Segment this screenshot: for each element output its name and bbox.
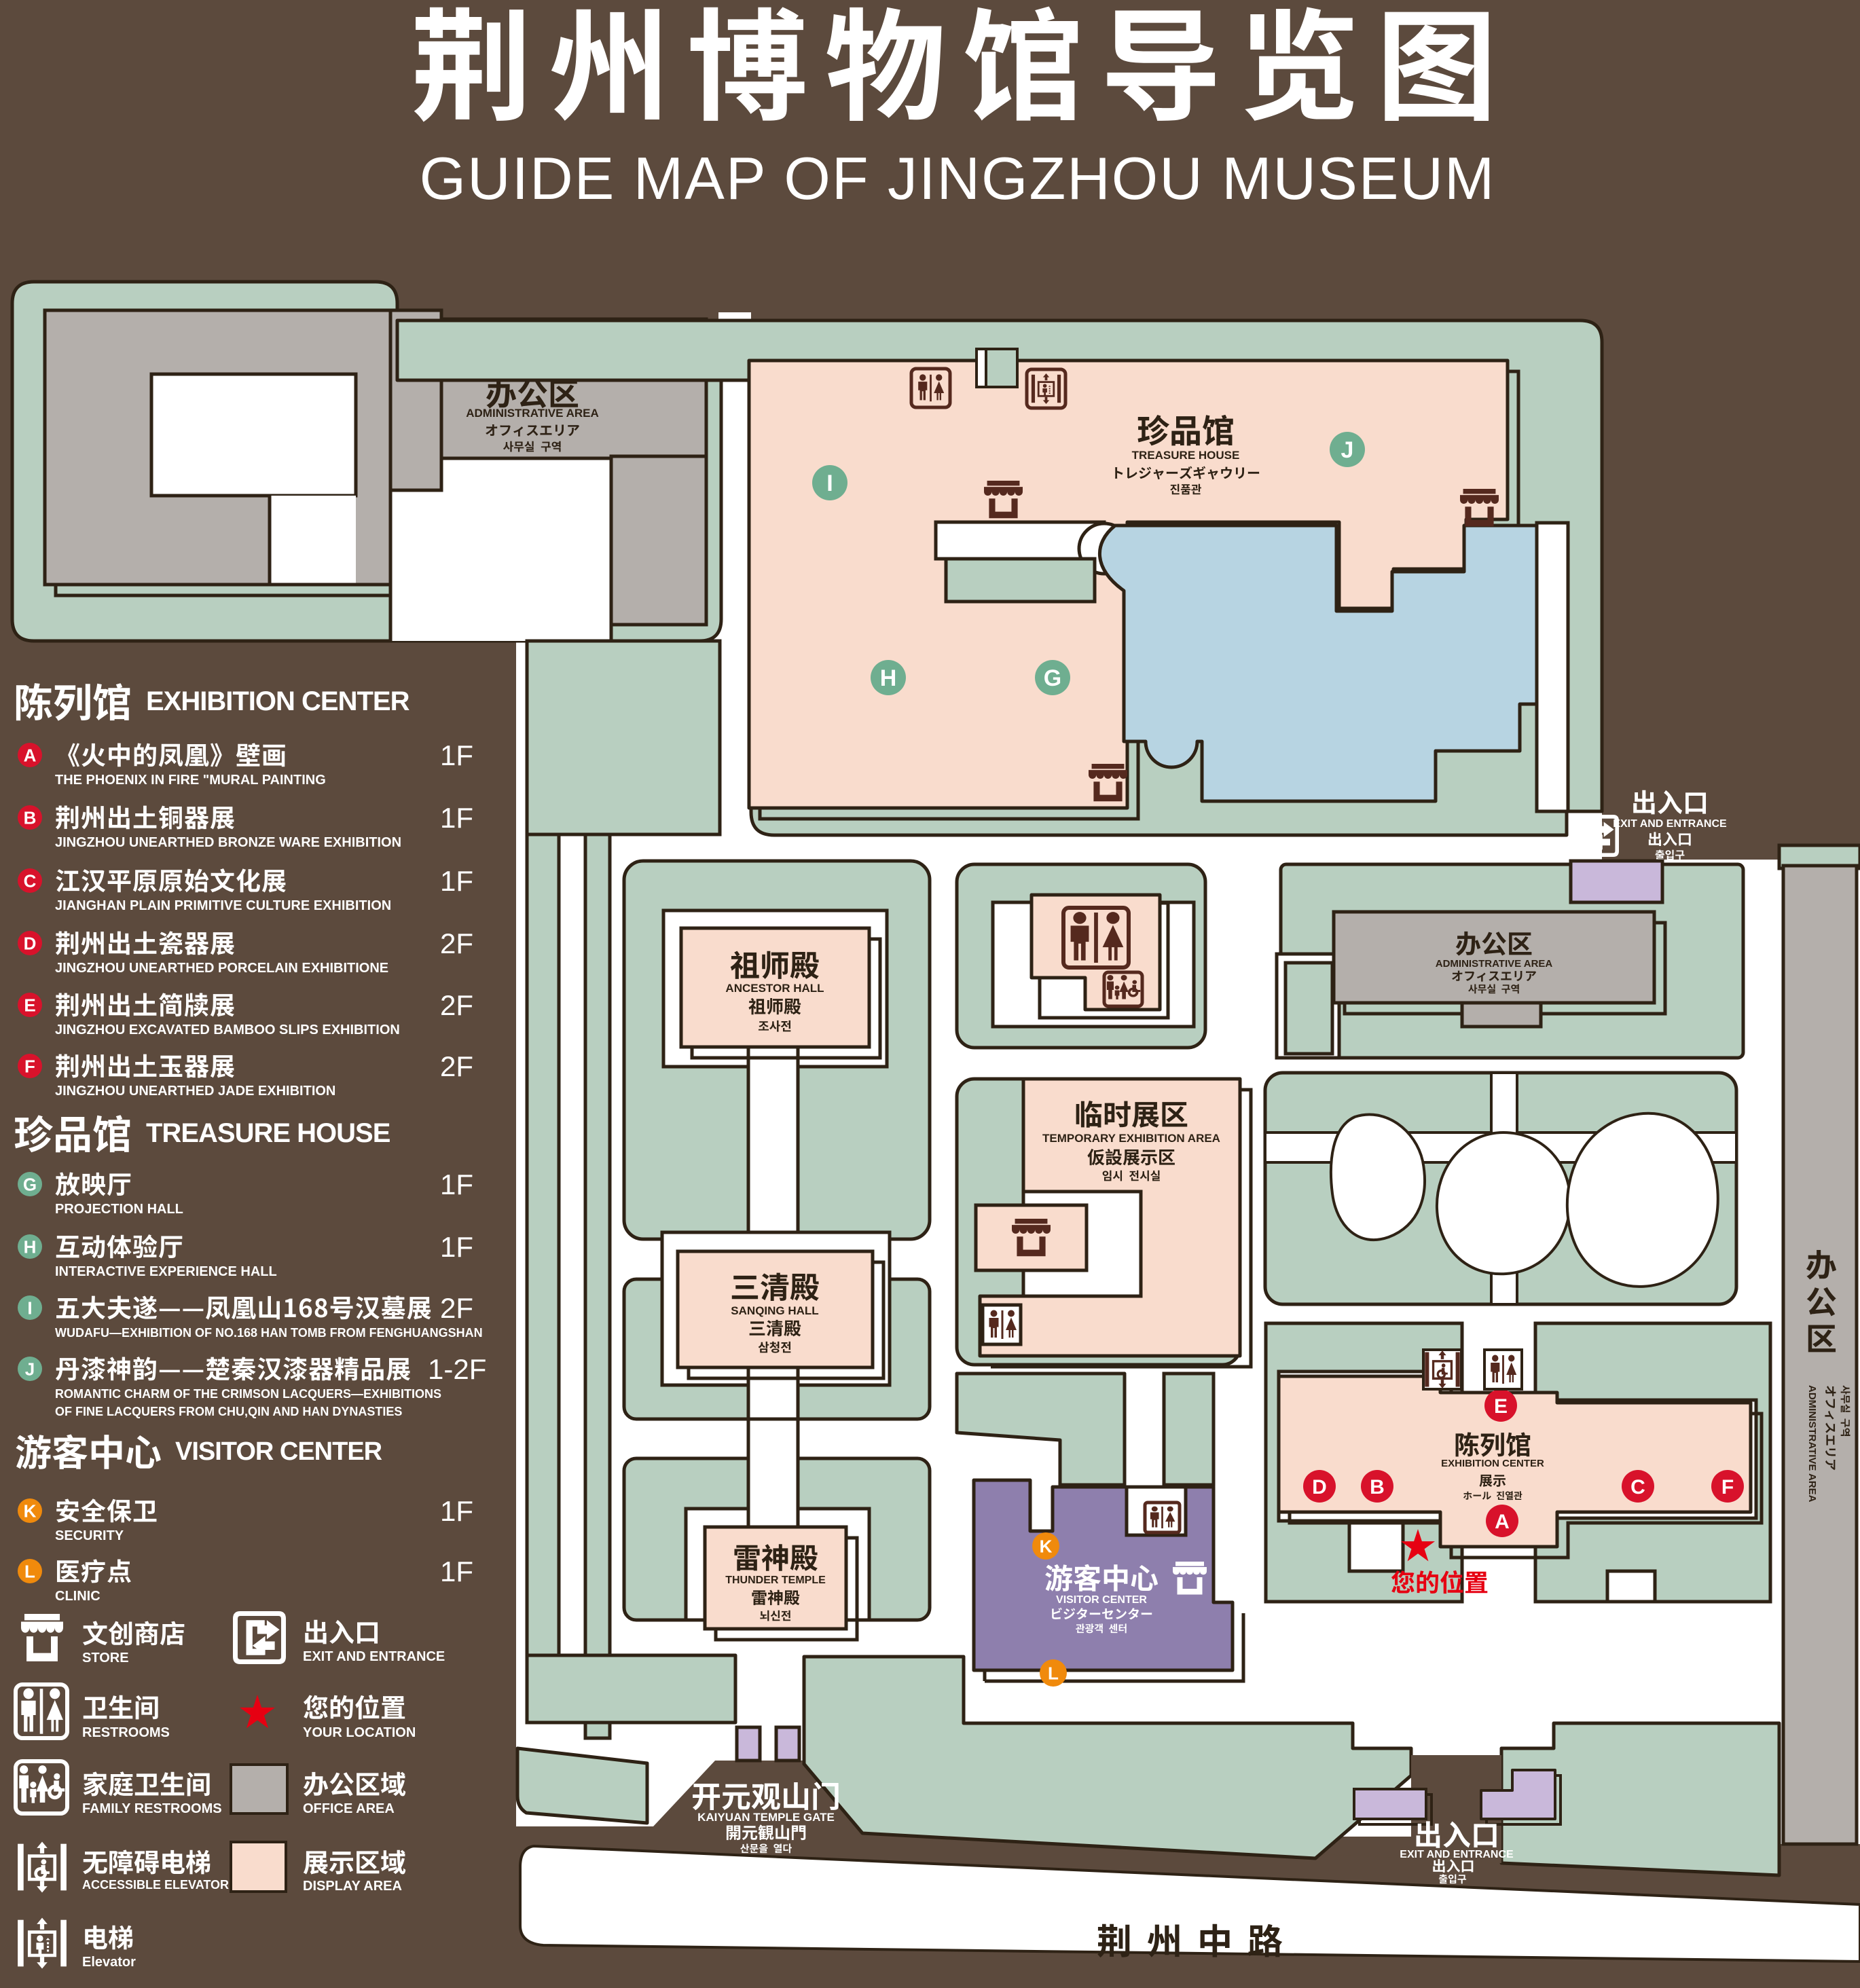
svg-text:Elevator: Elevator: [82, 1955, 136, 1970]
svg-text:TREASURE HOUSE: TREASURE HOUSE: [146, 1118, 390, 1148]
svg-text:E: E: [1494, 1395, 1508, 1418]
svg-text:JINGZHOU UNEARTHED PORCELAIN E: JINGZHOU UNEARTHED PORCELAIN EXHIBITIONE: [55, 961, 388, 976]
svg-text:EXIT AND ENTRANCE: EXIT AND ENTRANCE: [1400, 1849, 1514, 1860]
svg-text:ADMINISTRATIVE AREA: ADMINISTRATIVE AREA: [1436, 958, 1553, 970]
svg-text:GUIDE MAP OF JINGZHOU MUSEUM: GUIDE MAP OF JINGZHOU MUSEUM: [420, 145, 1496, 212]
svg-text:1F: 1F: [440, 739, 473, 771]
svg-text:2F: 2F: [440, 1050, 473, 1082]
svg-text:ANCESTOR HALL: ANCESTOR HALL: [725, 982, 824, 995]
svg-text:I: I: [27, 1297, 32, 1318]
svg-text:KAIYUAN TEMPLE GATE: KAIYUAN TEMPLE GATE: [697, 1811, 835, 1824]
svg-text:EXHIBITION CENTER: EXHIBITION CENTER: [1441, 1458, 1544, 1469]
svg-text:G: G: [23, 1174, 37, 1194]
svg-text:2F: 2F: [440, 1292, 473, 1324]
svg-text:1F: 1F: [440, 1495, 473, 1527]
svg-text:ACCESSIBLE ELEVATOR: ACCESSIBLE ELEVATOR: [82, 1878, 229, 1892]
svg-text:SANQING HALL: SANQING HALL: [731, 1304, 818, 1317]
svg-text:JINGZHOU EXCAVATED BAMBOO SLIP: JINGZHOU EXCAVATED BAMBOO SLIPS EXHIBITI…: [55, 1023, 400, 1037]
svg-text:J: J: [25, 1359, 35, 1379]
svg-text:ROMANTIC CHARM OF THE CRIMSON: ROMANTIC CHARM OF THE CRIMSON LACQUERS—E…: [55, 1387, 441, 1401]
svg-text:PROJECTION HALL: PROJECTION HALL: [55, 1202, 183, 1217]
svg-text:2F: 2F: [440, 927, 473, 959]
svg-text:VISITOR CENTER: VISITOR CENTER: [175, 1437, 382, 1466]
svg-text:THE PHOENIX IN FIRE "MURAL PAI: THE PHOENIX IN FIRE "MURAL PAINTING: [55, 773, 326, 788]
svg-text:D: D: [24, 933, 37, 953]
svg-text:B: B: [24, 807, 37, 828]
svg-text:1-2F: 1-2F: [428, 1353, 486, 1385]
svg-text:E: E: [24, 995, 35, 1015]
svg-text:JIANGHAN PLAIN PRIMITIVE CULTU: JIANGHAN PLAIN PRIMITIVE CULTURE EXHIBIT…: [55, 898, 391, 913]
svg-text:ADMINISTRATIVE AREA: ADMINISTRATIVE AREA: [1806, 1385, 1818, 1503]
svg-text:K: K: [24, 1501, 37, 1521]
svg-text:1F: 1F: [440, 802, 473, 834]
svg-text:F: F: [1721, 1476, 1734, 1498]
svg-text:FAMILY RESTROOMS: FAMILY RESTROOMS: [82, 1801, 222, 1816]
svg-text:J: J: [1341, 437, 1354, 463]
svg-text:D: D: [1312, 1476, 1327, 1498]
svg-text:1F: 1F: [440, 1231, 473, 1263]
svg-text:INTERACTIVE EXPERIENCE HALL: INTERACTIVE EXPERIENCE HALL: [55, 1264, 277, 1279]
svg-text:1F: 1F: [440, 865, 473, 897]
svg-text:1F: 1F: [440, 1168, 473, 1200]
svg-text:H: H: [880, 665, 897, 691]
svg-text:A: A: [24, 745, 37, 765]
svg-text:K: K: [1040, 1536, 1053, 1556]
svg-text:C: C: [24, 870, 37, 891]
svg-text:EXHIBITION CENTER: EXHIBITION CENTER: [146, 686, 410, 716]
svg-text:ADMINISTRATIVE AREA: ADMINISTRATIVE AREA: [466, 407, 599, 420]
svg-text:THUNDER TEMPLE: THUNDER TEMPLE: [725, 1575, 826, 1586]
svg-text:EXIT AND ENTRANCE: EXIT AND ENTRANCE: [1613, 818, 1727, 830]
svg-text:L: L: [1048, 1663, 1059, 1683]
svg-text:A: A: [1495, 1511, 1510, 1533]
svg-text:VISITOR CENTER: VISITOR CENTER: [1056, 1594, 1147, 1606]
svg-text:STORE: STORE: [82, 1651, 129, 1665]
svg-text:CLINIC: CLINIC: [55, 1589, 101, 1604]
svg-text:DISPLAY AREA: DISPLAY AREA: [303, 1879, 402, 1894]
svg-text:TEMPORARY EXHIBITION AREA: TEMPORARY EXHIBITION AREA: [1042, 1132, 1220, 1145]
svg-text:RESTROOMS: RESTROOMS: [82, 1725, 170, 1740]
svg-text:JINGZHOU UNEARTHED BRONZE WARE: JINGZHOU UNEARTHED BRONZE WARE EXHIBITIO…: [55, 835, 401, 850]
svg-text:F: F: [24, 1056, 35, 1076]
svg-text:H: H: [24, 1236, 37, 1257]
svg-text:WUDAFU—EXHIBITION OF NO.168 HA: WUDAFU—EXHIBITION OF NO.168 HAN TOMB FRO…: [55, 1326, 483, 1340]
svg-text:EXIT AND ENTRANCE: EXIT AND ENTRANCE: [303, 1649, 445, 1664]
svg-text:L: L: [24, 1561, 35, 1581]
svg-text:B: B: [1370, 1476, 1385, 1498]
svg-text:JINGZHOU UNEARTHED JADE EXHIBI: JINGZHOU UNEARTHED JADE EXHIBITION: [55, 1084, 335, 1099]
svg-text:2F: 2F: [440, 989, 473, 1021]
svg-text:OF FINE LACQUERS FROM CHU,QIN: OF FINE LACQUERS FROM CHU,QIN AND HAN DY…: [55, 1405, 402, 1418]
svg-text:TREASURE HOUSE: TREASURE HOUSE: [1132, 449, 1240, 462]
svg-text:I: I: [826, 471, 833, 496]
svg-text:C: C: [1630, 1476, 1645, 1498]
svg-text:1F: 1F: [440, 1556, 473, 1587]
svg-text:YOUR LOCATION: YOUR LOCATION: [303, 1725, 416, 1740]
svg-text:OFFICE AREA: OFFICE AREA: [303, 1801, 395, 1816]
svg-text:SECURITY: SECURITY: [55, 1528, 124, 1543]
svg-text:G: G: [1044, 665, 1061, 691]
